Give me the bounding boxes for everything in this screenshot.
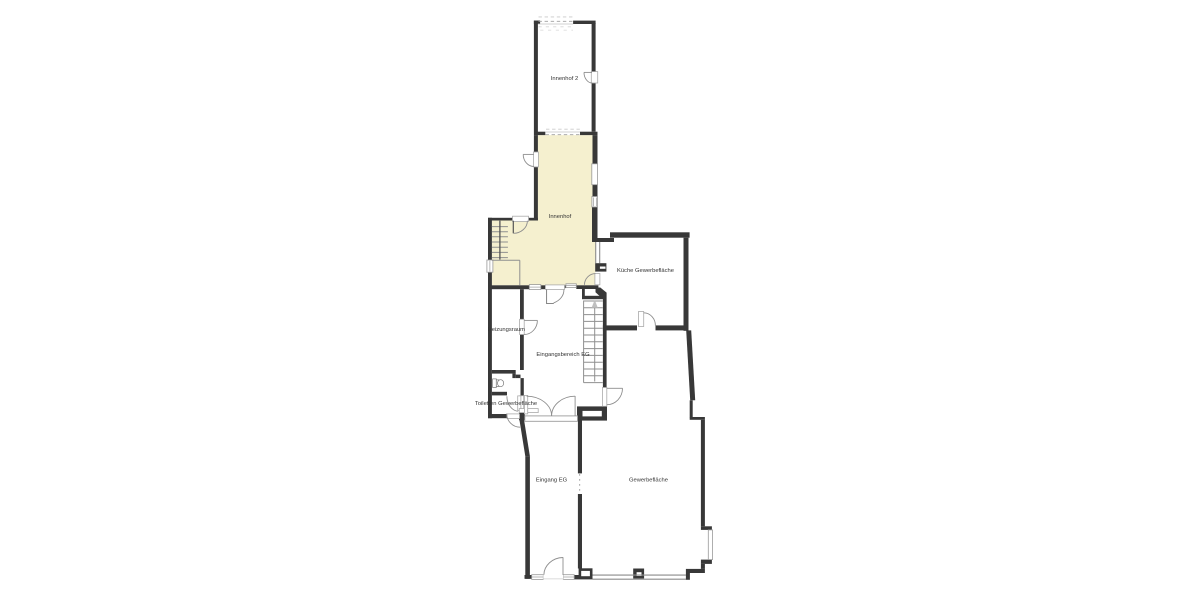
svg-text:Toiletten Gewerbefläche: Toiletten Gewerbefläche [475, 401, 537, 407]
svg-text:Gewerbefläche: Gewerbefläche [629, 478, 668, 484]
svg-text:Küche Gewerbefläche: Küche Gewerbefläche [617, 268, 674, 274]
svg-text:Eingangsbereich EG: Eingangsbereich EG [536, 352, 590, 358]
svg-text:Heizungsraum: Heizungsraum [488, 327, 526, 333]
svg-text:Eingang EG: Eingang EG [536, 478, 568, 484]
svg-text:Innenhof 2: Innenhof 2 [551, 76, 578, 82]
svg-text:Innenhof: Innenhof [549, 214, 572, 220]
